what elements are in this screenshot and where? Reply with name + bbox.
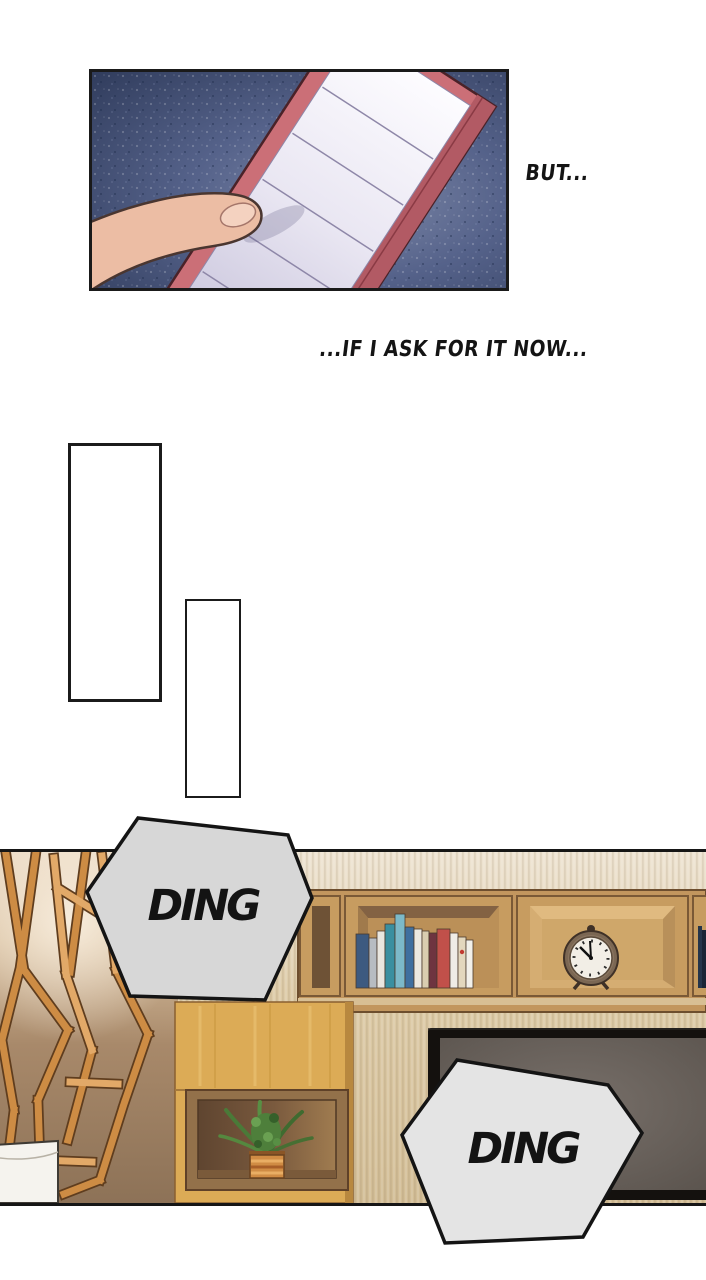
clock-cubby	[517, 896, 688, 996]
shelf-row	[298, 890, 706, 1012]
white-pot	[0, 1141, 58, 1203]
comic-page: BUT... ...IF I ASK FOR IT NOW...	[0, 0, 706, 1280]
empty-panel-2	[185, 599, 241, 798]
empty-panel-1	[68, 443, 162, 702]
notepad-illustration	[92, 72, 506, 288]
plant-alcove	[186, 1090, 348, 1190]
panel-notepad	[89, 69, 509, 291]
sfx-text-ding-2: DING	[468, 1124, 581, 1174]
narration-ask: ...IF I ASK FOR IT NOW...	[318, 337, 589, 362]
golden-cabinet	[175, 1002, 353, 1203]
right-cubby	[693, 896, 706, 996]
narration-but: BUT...	[524, 161, 590, 186]
sfx-bubble-ding-1: DING	[75, 806, 320, 1008]
books-cubby	[345, 896, 512, 996]
sfx-bubble-ding-2: DING	[392, 1050, 650, 1250]
sfx-text-ding-1: DING	[148, 881, 261, 931]
